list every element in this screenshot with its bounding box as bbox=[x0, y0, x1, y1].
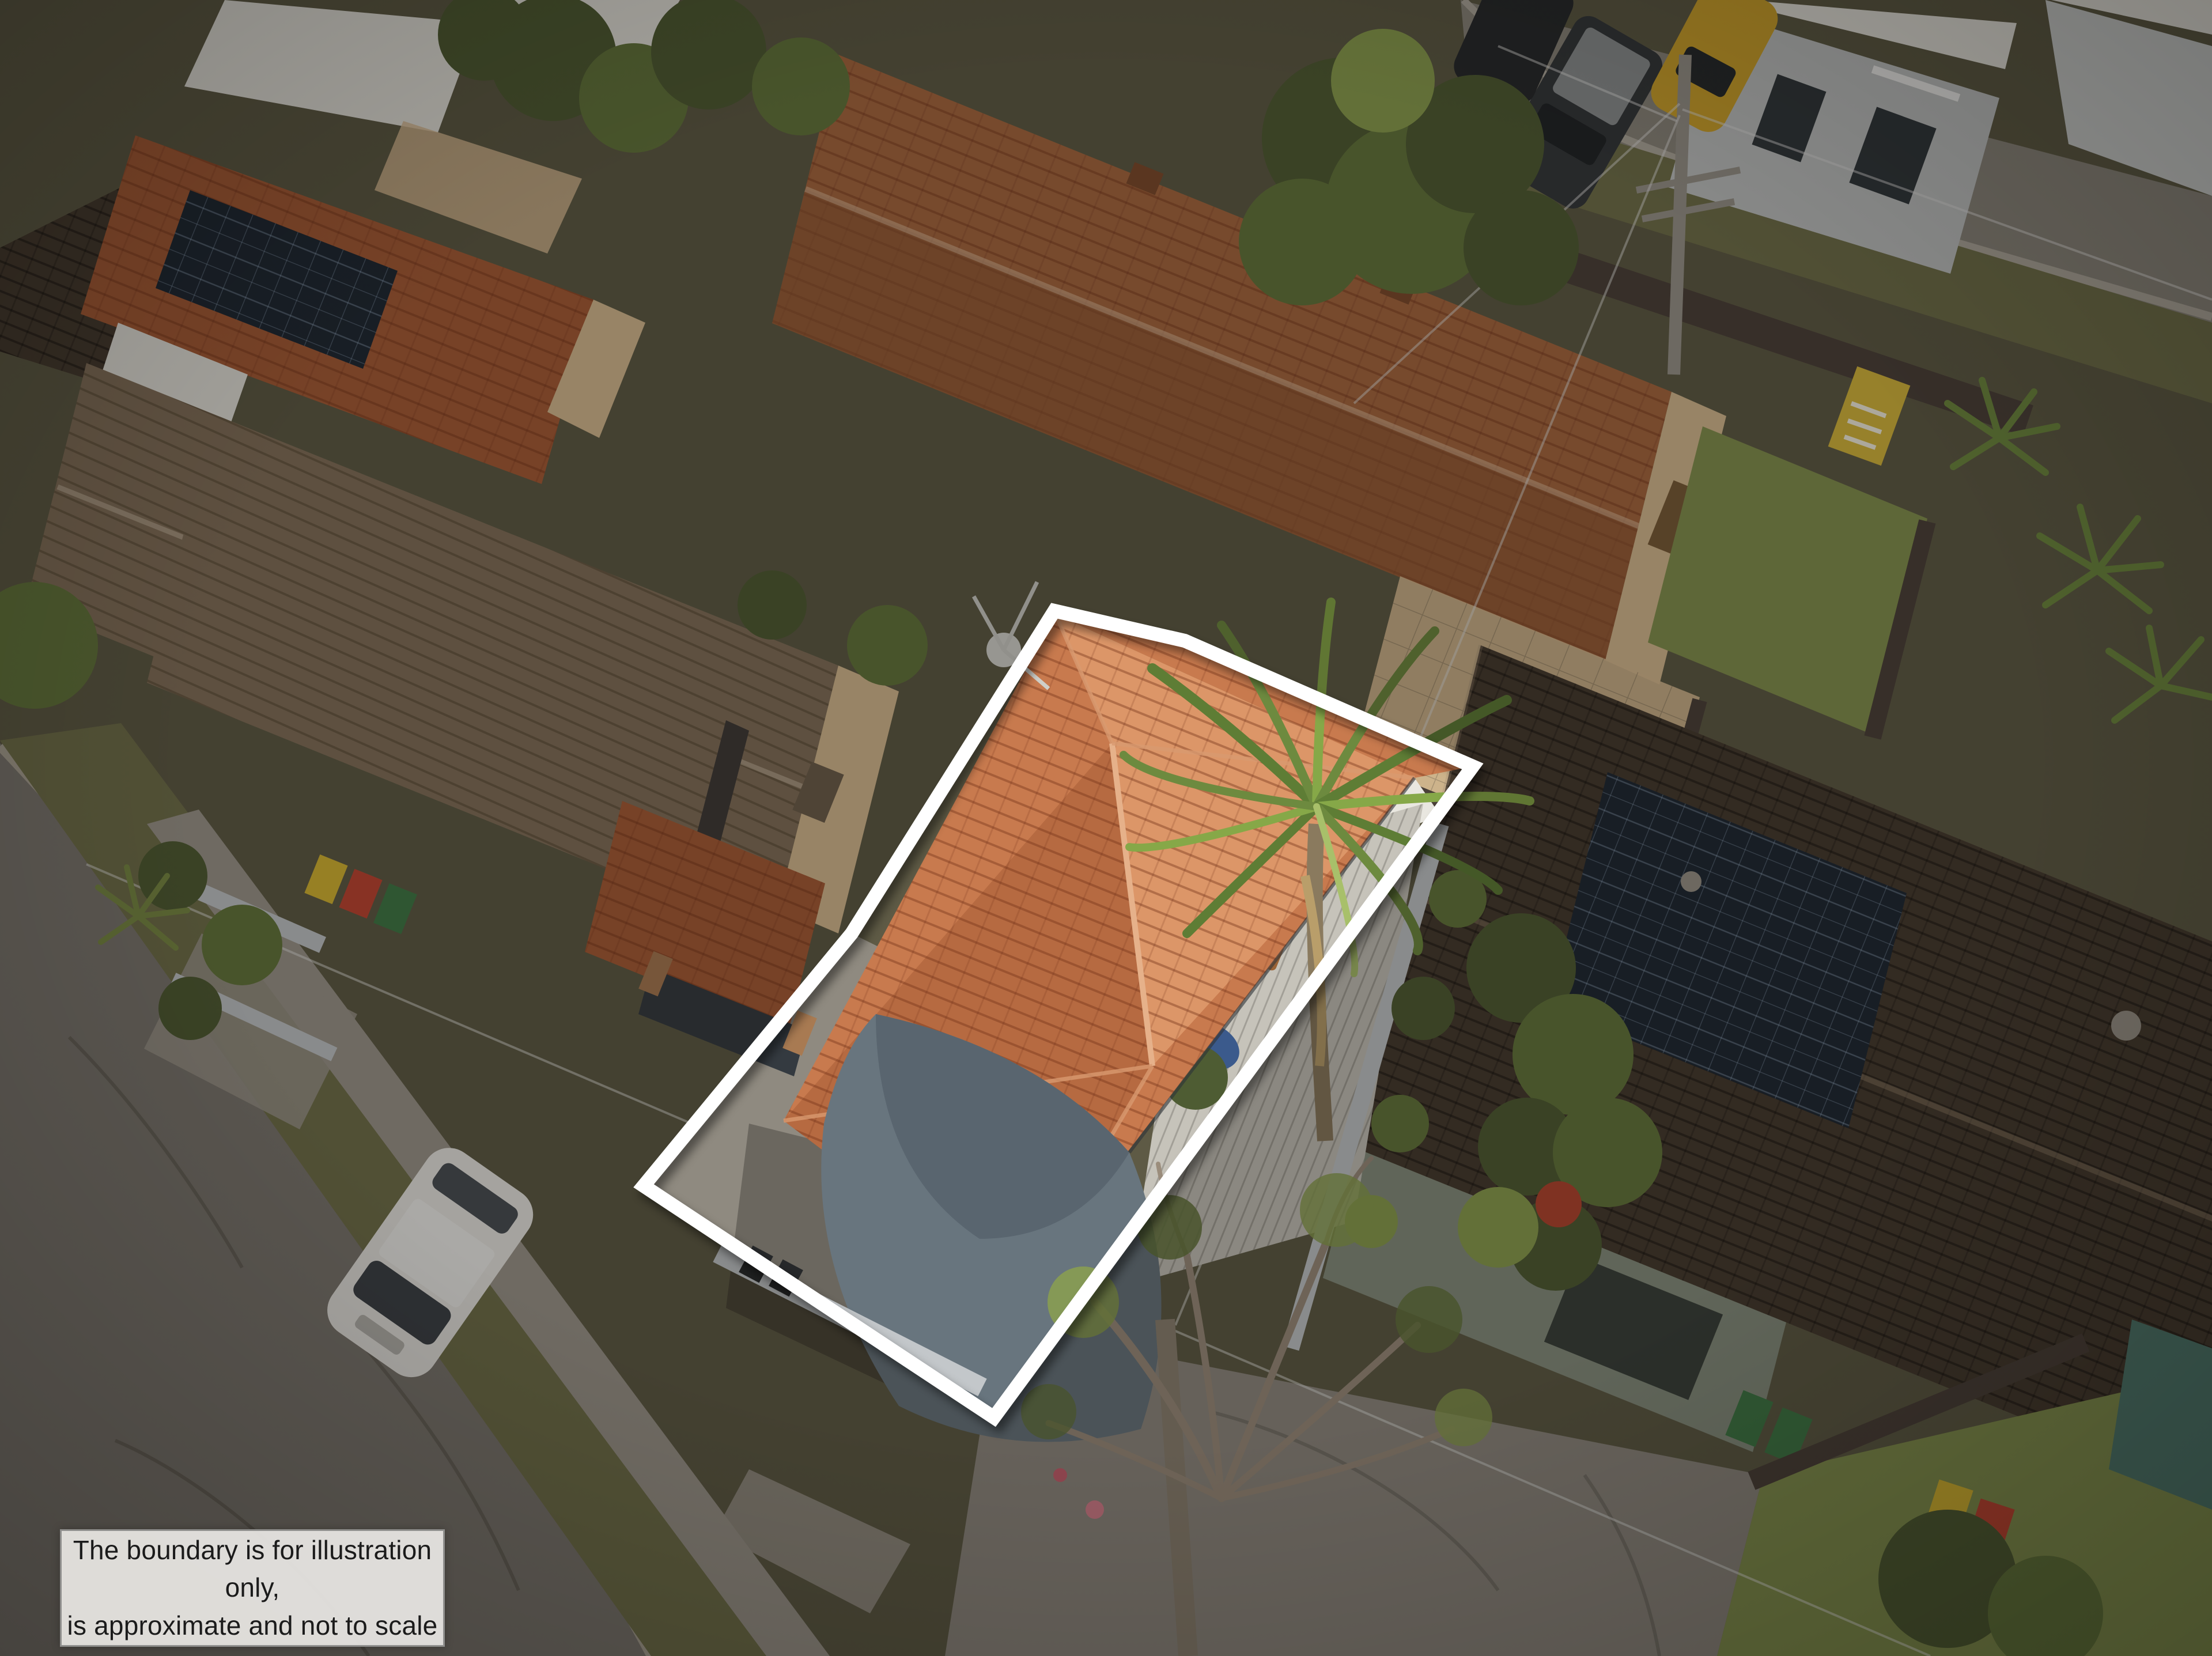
aerial-property-photo: The boundary is for illustration only, i… bbox=[0, 0, 2212, 1656]
disclaimer-line-2: is approximate and not to scale bbox=[67, 1607, 438, 1644]
disclaimer-line-1: The boundary is for illustration only, bbox=[62, 1532, 443, 1607]
vignette bbox=[0, 0, 2212, 1656]
drone-scene bbox=[0, 0, 2212, 1656]
disclaimer-box: The boundary is for illustration only, i… bbox=[60, 1529, 445, 1647]
